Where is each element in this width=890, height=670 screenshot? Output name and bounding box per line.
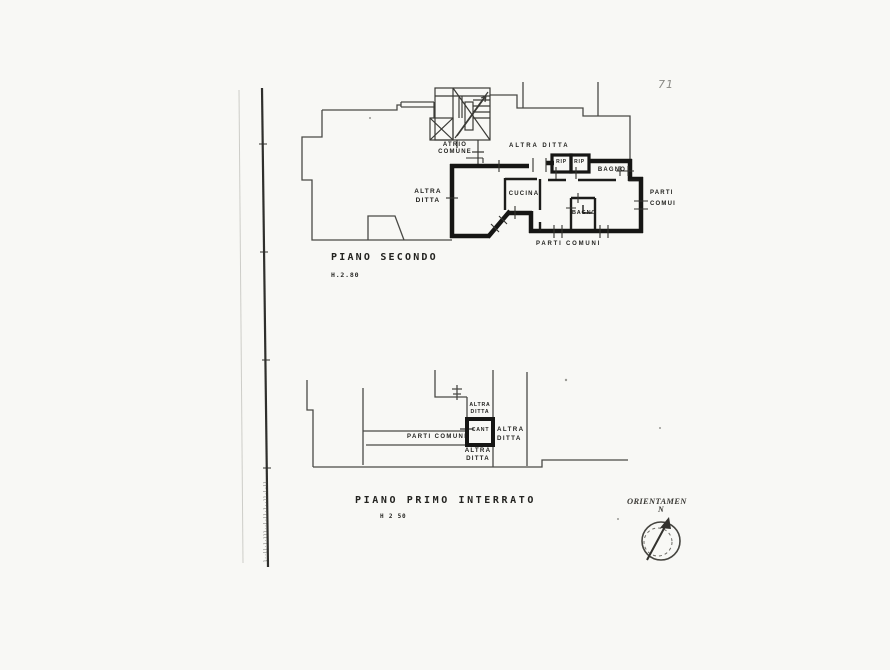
label-rip-right: RIP	[571, 160, 588, 166]
label-atrio-comune: ATRIO COMUNE	[434, 142, 476, 156]
label-parti-comuni-lower: PARTI COMUNI	[407, 434, 467, 441]
page-number: 71	[658, 78, 674, 91]
compass-label: ORIENTAMEN	[627, 496, 687, 506]
label-altra-ditta-top: ALTRA DITTA	[509, 143, 570, 150]
margin-microtext: l··ll·l·lll··l·ll·l··ll·l·ll	[263, 481, 268, 562]
lower-plan-height-note: H 2 50	[380, 514, 406, 521]
label-parti-comuni-bottom: PARTI COMUNI	[536, 241, 601, 248]
scanned-floor-plan-page: 71 l··ll·l·lll··l·ll·l··ll·l·ll ATRIO CO…	[0, 0, 890, 670]
upper-plan-interior-walls	[505, 178, 639, 231]
upper-plan-title: PIANO SECONDO	[331, 252, 438, 264]
floor-plan-drawing	[0, 0, 890, 670]
compass-icon	[642, 517, 680, 560]
label-altra-ditta-lower-bottom: ALTRA DITTA	[463, 447, 493, 463]
label-parti-comuni-right: PARTI COMUI	[650, 188, 676, 210]
label-cant: CANT	[469, 428, 492, 434]
label-altra-ditta-left: ALTRA DITTA	[411, 187, 445, 205]
label-bagno-mid: BAGNO	[572, 210, 596, 216]
label-bagno-top: BAGNO	[596, 167, 628, 174]
compass-north-label: N	[658, 505, 664, 514]
lower-plan-title: PIANO PRIMO INTERRATO	[355, 495, 536, 507]
upper-plan-height-note: H.2.80	[331, 272, 359, 279]
label-rip-left: RIP	[553, 160, 570, 166]
label-altra-ditta-lower-top: ALTRA DITTA	[466, 402, 494, 416]
label-altra-ditta-lower-right: ALTRA DITTA	[497, 425, 525, 443]
label-cucina: CUCINA	[508, 191, 540, 198]
